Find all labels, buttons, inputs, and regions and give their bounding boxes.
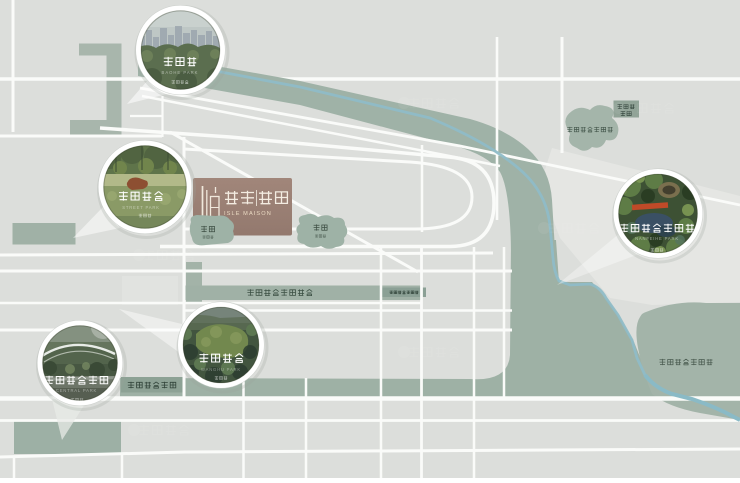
svg-text:STREET PARK: STREET PARK <box>122 205 160 210</box>
svg-text:NANFEIHE PARK: NANFEIHE PARK <box>635 236 679 241</box>
svg-text:ISLE MAISON: ISLE MAISON <box>224 211 272 217</box>
svg-text:BAOHE PARK: BAOHE PARK <box>162 70 199 75</box>
svg-text:WANGHU PARK: WANGHU PARK <box>201 367 241 372</box>
svg-text:CENTRAL PARK: CENTRAL PARK <box>56 388 97 393</box>
